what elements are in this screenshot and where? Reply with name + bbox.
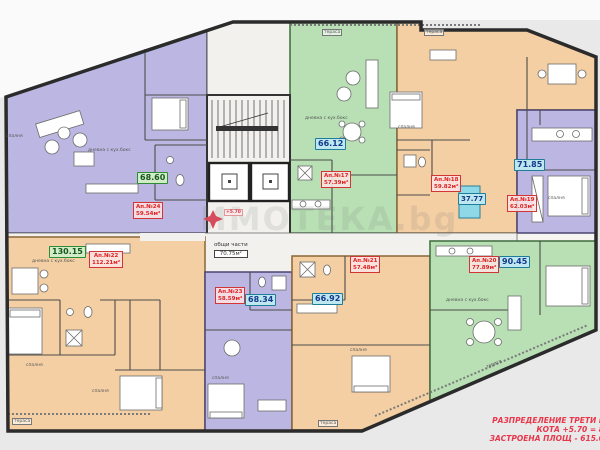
apartment-label-23: Ап.№23 58.59м² (215, 287, 245, 304)
common-area-label: общи части 70.75м² (214, 242, 248, 258)
area-badge-68-60: 68.60 (137, 172, 168, 184)
area-badge-90-45: 90.45 (499, 256, 530, 268)
apartment-area: 57.48м² (353, 265, 377, 271)
apartment-area: 57.39м² (324, 180, 348, 186)
common-area-value: 70.75м² (214, 250, 248, 259)
room-label: дневна с кух.бокс (88, 148, 131, 153)
apartment-number: Ап.№20 (472, 258, 496, 264)
apartment-number: Ап.№18 (434, 177, 458, 183)
room-label: спалня (6, 134, 23, 139)
apartment-number: Ап.№24 (136, 204, 160, 210)
apartment-area: 112.21м² (92, 260, 120, 266)
common-area-name: общи части (214, 242, 248, 248)
room-label: дневна с кух.бокс (446, 298, 489, 303)
apartment-area: 59.54м² (136, 211, 160, 217)
room-label: спалня (212, 376, 229, 381)
elevator-shafts (209, 163, 289, 201)
room-label: спалня (26, 363, 43, 368)
floor-plan-screenshot: ИМОТЕКА.bg 68.60 130.15 66.12 71.85 37.7… (0, 0, 600, 450)
apartment-area: 77.89м² (472, 265, 496, 271)
area-badge-66-12: 66.12 (315, 138, 346, 150)
room-label: дневна с кух.бокс (32, 259, 75, 264)
room-label: спалня (350, 348, 367, 353)
title-line-3: ЗАСТРОЕНА ПЛОЩ - 615.0 (490, 434, 600, 443)
terrace-label: тераса (12, 418, 32, 425)
level-marker: +5.70 (224, 209, 243, 216)
apartment-number: Ап.№22 (94, 253, 118, 259)
title-line-2: КОТА +5.70 = 8 (490, 425, 600, 434)
apartment-21-region (292, 256, 430, 430)
area-badge-68-34: 68.34 (245, 294, 276, 306)
room-label: дневна с кух.бокс (305, 116, 348, 121)
apartment-number: Ап.№19 (510, 197, 534, 203)
apartment-label-24: Ап.№24 59.54м² (133, 202, 163, 219)
area-badge-37-77: 37.77 (458, 193, 486, 205)
apartment-label-18: Ап.№18 59.82м² (431, 175, 461, 192)
area-badge-71-85: 71.85 (514, 159, 545, 171)
terrace-label: тераса (322, 29, 342, 36)
apartment-area: 58.59м² (218, 296, 242, 302)
apartment-label-19: Ап.№19 62.03м² (507, 195, 537, 212)
corridor-notch (140, 233, 205, 241)
terrace-label: тераса (318, 420, 338, 427)
room-label: спалня (398, 125, 415, 130)
watermark: ИМОТЕКА.bg (200, 200, 458, 238)
area-badge-66-92: 66.92 (312, 293, 343, 305)
apartment-label-20: Ап.№20 77.89м² (469, 256, 499, 273)
area-badge-130-15: 130.15 (49, 246, 86, 258)
title-block: РАЗПРЕДЕЛЕНИЕ ТРЕТИ Е КОТА +5.70 = 8 ЗАС… (490, 416, 600, 443)
title-line-1: РАЗПРЕДЕЛЕНИЕ ТРЕТИ Е (490, 416, 600, 425)
apartment-number: Ап.№17 (324, 173, 348, 179)
apartment-label-17: Ап.№17 57.39м² (321, 171, 351, 188)
room-label: спалня (92, 389, 109, 394)
apartment-number: Ап.№23 (218, 289, 242, 295)
stair-landing-region (207, 22, 290, 95)
apartment-area: 59.82м² (434, 184, 458, 190)
room-label: спалня (548, 196, 565, 201)
apartment-label-22: Ап.№22 112.21м² (89, 251, 123, 268)
apartment-label-21: Ап.№21 57.48м² (350, 256, 380, 273)
apartment-number: Ап.№21 (353, 258, 377, 264)
apartment-area: 62.03м² (510, 204, 534, 210)
terrace-label: тераса (424, 29, 444, 36)
